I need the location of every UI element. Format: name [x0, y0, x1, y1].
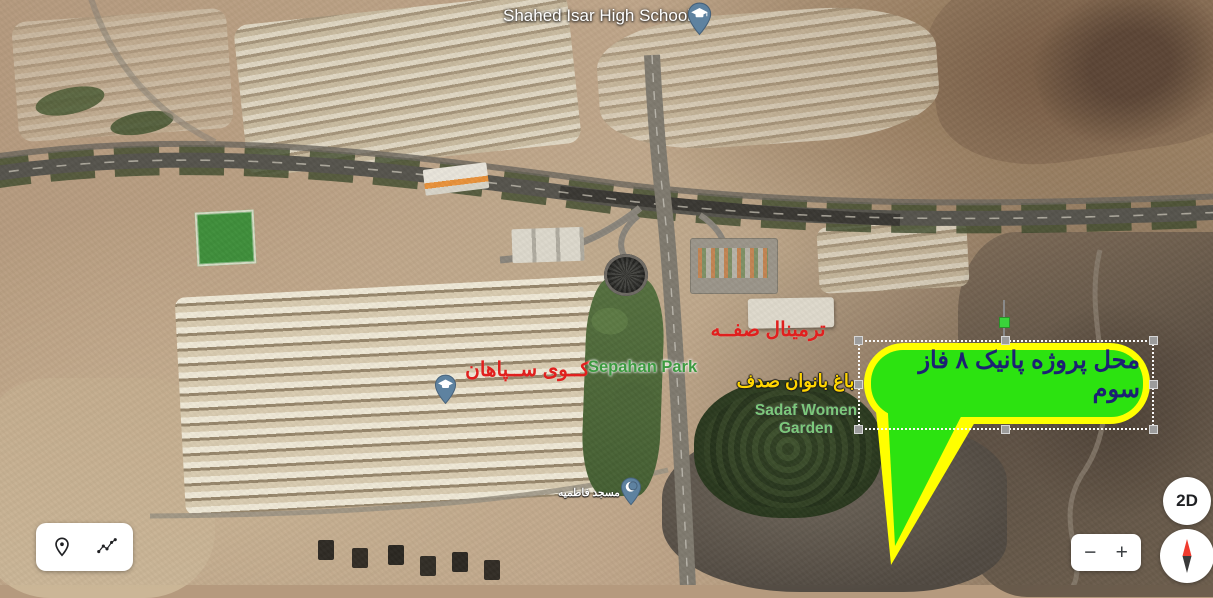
path-tool-button[interactable]	[87, 523, 127, 571]
mosque-pin crescent-icon[interactable]	[620, 477, 642, 506]
path-icon	[95, 536, 119, 558]
selection-box[interactable]	[858, 340, 1154, 430]
selection-handle-bottom-left[interactable]	[854, 425, 863, 434]
selection-handle-bottom-middle[interactable]	[1001, 425, 1010, 434]
selection-handle-top-left[interactable]	[854, 336, 863, 345]
sepahan-school-pin graduation-cap-icon[interactable]	[434, 374, 457, 405]
selection-handle-bottom-right[interactable]	[1149, 425, 1158, 434]
label-bagh-banovan-sadaf: باغ بانوان صدف	[728, 371, 863, 392]
label-sepahan-park: Sepahan Park	[588, 358, 697, 377]
satellite-map[interactable]: Shahed Isar High School ترمینال صفــه کـ…	[0, 0, 1213, 585]
zoom-in-button[interactable]: +	[1110, 542, 1134, 563]
label-sadaf-line2: Garden	[779, 420, 833, 437]
compass-needle-icon	[1179, 538, 1195, 574]
2d-view-button[interactable]: 2D	[1163, 477, 1211, 525]
compass-button[interactable]	[1160, 529, 1213, 583]
zoom-out-button[interactable]: −	[1078, 542, 1102, 563]
rotate-handle[interactable]	[999, 317, 1010, 328]
label-sadaf-line1: Sadaf Women	[755, 402, 857, 419]
label-shahed-isar-high-school: Shahed Isar High School	[503, 6, 691, 26]
label-mosque-fatemiyeh: مسجد فاطمیه	[550, 487, 628, 499]
zoom-control: − +	[1071, 534, 1141, 571]
selection-handle-top-middle[interactable]	[1001, 336, 1010, 345]
label-terminal-soffeh: ترمینال صفــه	[698, 317, 838, 342]
label-kuy-sepahan: کــوی ســپاهان	[455, 357, 600, 382]
school-pin graduation-cap-icon[interactable]	[686, 2, 713, 36]
placemark-tool-button[interactable]	[42, 523, 82, 571]
map-tools-toolbar	[36, 523, 133, 571]
location-pin-icon	[51, 536, 73, 558]
selection-handle-top-right[interactable]	[1149, 336, 1158, 345]
selection-handle-mid-right[interactable]	[1149, 380, 1158, 389]
label-sadaf-women-garden: Sadaf Women Garden	[750, 402, 862, 438]
selection-handle-mid-left[interactable]	[854, 380, 863, 389]
